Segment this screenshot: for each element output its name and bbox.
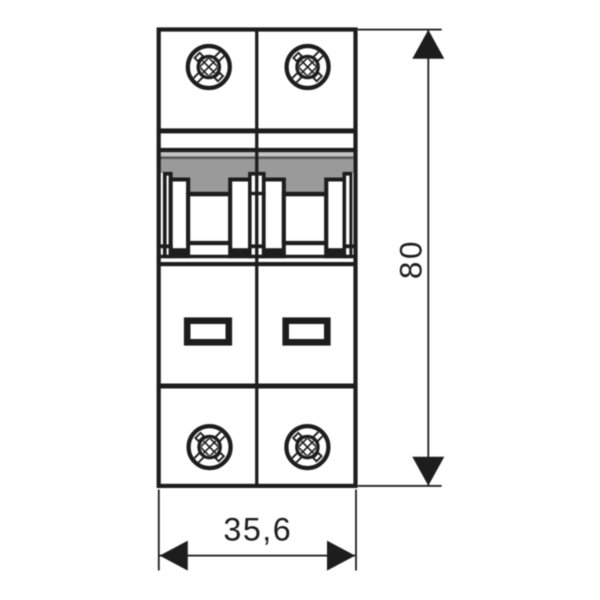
svg-text:80: 80 xyxy=(393,239,429,279)
svg-text:35,6: 35,6 xyxy=(223,512,292,548)
